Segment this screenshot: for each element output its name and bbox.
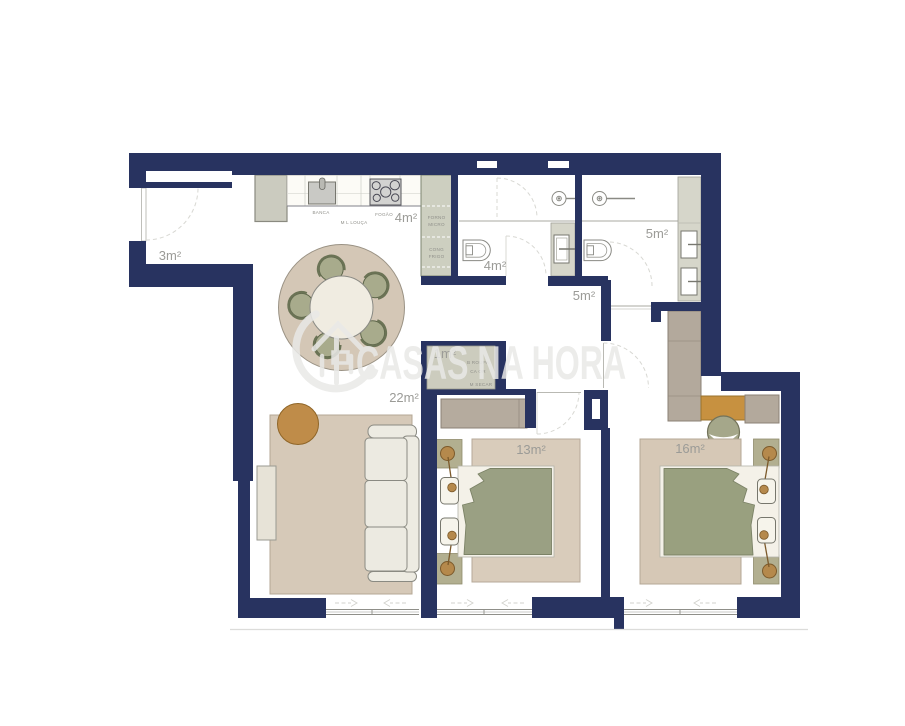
svg-text:5m²: 5m² [646,226,669,241]
svg-text:5m²: 5m² [573,288,596,303]
svg-text:4m²: 4m² [395,210,418,225]
svg-text:FRIGO: FRIGO [429,254,445,259]
svg-text:22m²: 22m² [389,390,419,405]
svg-text:3m²: 3m² [159,248,182,263]
svg-text:CASAS NA HORA: CASAS NA HORA [356,337,626,390]
svg-text:FORNO: FORNO [428,215,446,220]
svg-text:13m²: 13m² [516,442,546,457]
svg-text:MICRO: MICRO [428,222,445,227]
svg-text:4m²: 4m² [484,258,507,273]
svg-text:16m²: 16m² [675,441,705,456]
svg-text:M L LOUÇA: M L LOUÇA [341,220,369,225]
svg-text:BANCA: BANCA [312,210,330,215]
svg-text:CONG: CONG [429,247,444,252]
svg-text:FOGÃO: FOGÃO [375,211,393,217]
